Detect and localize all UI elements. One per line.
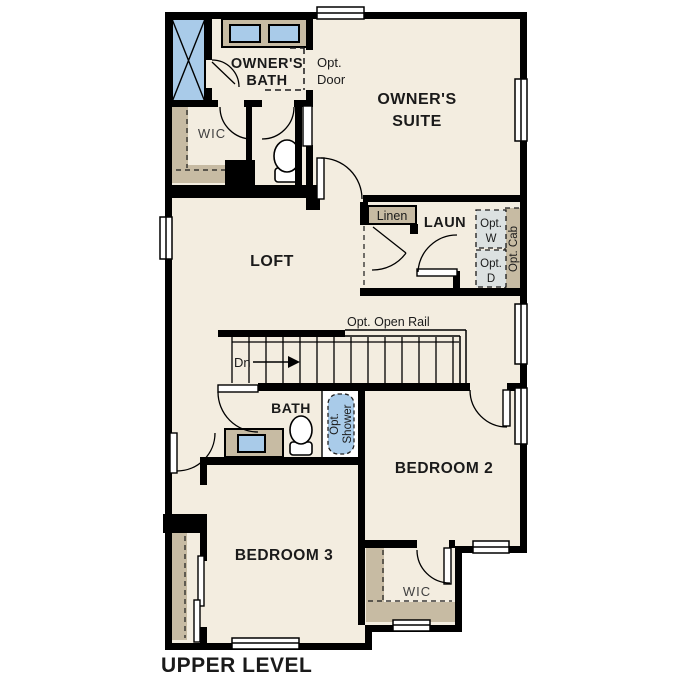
wic-bottom-shelf-bottom xyxy=(366,602,455,622)
owners-sink-right xyxy=(269,25,299,42)
opt-d-label-line1: Opt. xyxy=(480,258,502,270)
closet-bypass-door-1 xyxy=(198,556,204,606)
window-loft-left xyxy=(160,217,172,259)
opt-shower-label-line2: Shower xyxy=(342,404,354,443)
owners-bath-label-line2: BATH xyxy=(246,73,287,89)
opt-shower-label-line1: Opt. xyxy=(329,413,341,435)
owners-sink-left xyxy=(230,25,260,42)
wic-top-label: WIC xyxy=(198,126,226,141)
laundry-door-leaf xyxy=(417,269,457,276)
owners-suite-label-line2: SUITE xyxy=(392,113,442,130)
opt-door-label-line1: Opt. xyxy=(317,55,342,70)
bedroom3-door-leaf xyxy=(170,433,177,473)
window-landing-right xyxy=(515,304,527,364)
window-bedroom3-bottom xyxy=(232,638,299,649)
floor-plan: OWNER'S BATH Opt. Door OWNER'S SUITE WIC… xyxy=(0,0,687,687)
suite-door-leaf xyxy=(317,158,324,199)
opt-open-rail-label: Opt. Open Rail xyxy=(347,315,430,329)
bedroom2-label: BEDROOM 2 xyxy=(395,460,493,477)
opt-w-label-line1: Opt. xyxy=(480,218,502,230)
bedroom2-door-leaf xyxy=(503,390,510,426)
wic-bottom-door-leaf xyxy=(444,548,451,584)
opt-w-label-line2: W xyxy=(486,233,497,245)
plan-title: UPPER LEVEL xyxy=(161,654,312,677)
laun-label: LAUN xyxy=(424,215,466,231)
opt-cab-label: Opt. Cab xyxy=(508,226,520,272)
loft-label: LOFT xyxy=(250,253,294,270)
closet-bypass-door-2 xyxy=(194,600,200,642)
bedroom3-label: BEDROOM 3 xyxy=(235,547,333,564)
window-bedroom2-right xyxy=(515,388,527,444)
owners-shower xyxy=(172,19,205,102)
window-top xyxy=(317,7,364,19)
window-suite-right xyxy=(515,79,527,141)
owners-suite-label-line1: OWNER'S xyxy=(377,91,456,108)
wic-top-shelf-bottom xyxy=(172,165,225,183)
bath-label: BATH xyxy=(271,400,311,416)
floor-plan-page: OWNER'S BATH Opt. Door OWNER'S SUITE WIC… xyxy=(0,0,687,687)
linen-label: Linen xyxy=(377,209,408,223)
opt-d-label-line2: D xyxy=(487,273,495,285)
opt-door-label-line2: Door xyxy=(317,72,346,87)
bath-toilet xyxy=(290,416,312,455)
wic-bottom-label: WIC xyxy=(403,584,431,599)
down-label: Dn xyxy=(234,355,251,370)
wic-bottom-shelf-left xyxy=(366,548,384,606)
window-wic-bottom xyxy=(393,620,430,631)
bath-door-leaf xyxy=(218,385,258,392)
owners-bath-label-line1: OWNER'S xyxy=(231,56,303,72)
bath-sink xyxy=(238,435,265,452)
window-bedroom2-bottom xyxy=(473,541,509,553)
